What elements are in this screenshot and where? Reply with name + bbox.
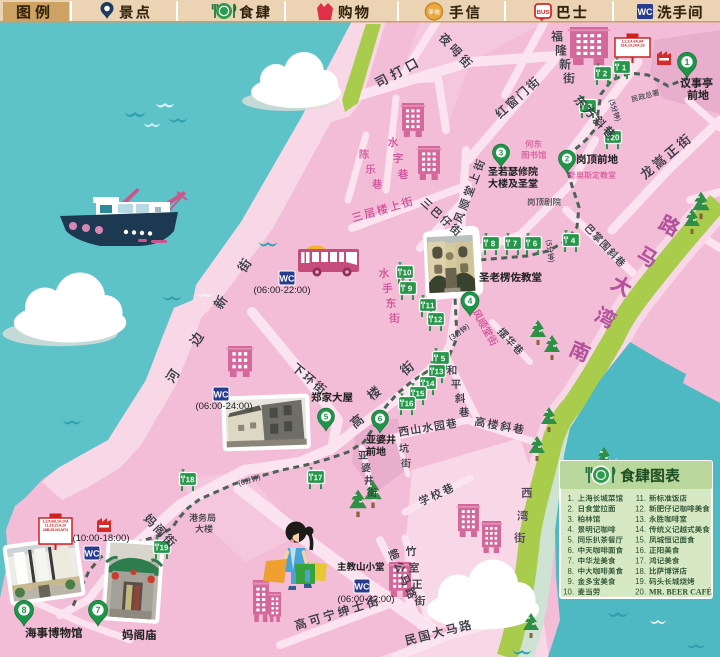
svg-text:12.: 12. [635,504,646,513]
svg-text:2.: 2. [567,504,574,513]
svg-text:MR. BEER CAFÉ: MR. BEER CAFÉ [649,587,712,597]
svg-text:14.: 14. [635,525,646,534]
svg-text:(06:00-22:00): (06:00-22:00) [337,594,394,605]
svg-text:1.: 1. [567,494,574,503]
svg-text:5.: 5. [567,536,574,545]
svg-text:20.: 20. [635,588,646,597]
svg-text:3.: 3. [567,515,574,524]
svg-text:17.: 17. [635,556,646,565]
svg-text:18A,19,26A,33: 18A,19,26A,33 [620,44,644,48]
svg-text:7.: 7. [567,556,574,565]
svg-text:13.: 13. [635,515,646,524]
svg-text:(06:00-22:00): (06:00-22:00) [253,285,310,296]
svg-text:10.: 10. [563,588,574,597]
svg-text:4.: 4. [567,525,574,534]
svg-text:19.: 19. [635,577,646,586]
svg-text:15.: 15. [635,536,646,545]
svg-text:6.: 6. [567,546,574,555]
svg-text:18.: 18. [635,567,646,576]
svg-text:WC: WC [638,7,653,17]
svg-text:8.: 8. [567,567,574,576]
svg-text:28B,55,N3,MT4: 28B,55,N3,MT4 [43,528,68,532]
svg-text:(10:00-18:00): (10:00-18:00) [72,533,129,544]
svg-text:11.: 11. [636,494,646,503]
svg-text:(06:00-24:00): (06:00-24:00) [195,401,252,412]
svg-text:9.: 9. [567,577,574,586]
svg-text:16.: 16. [635,546,646,555]
